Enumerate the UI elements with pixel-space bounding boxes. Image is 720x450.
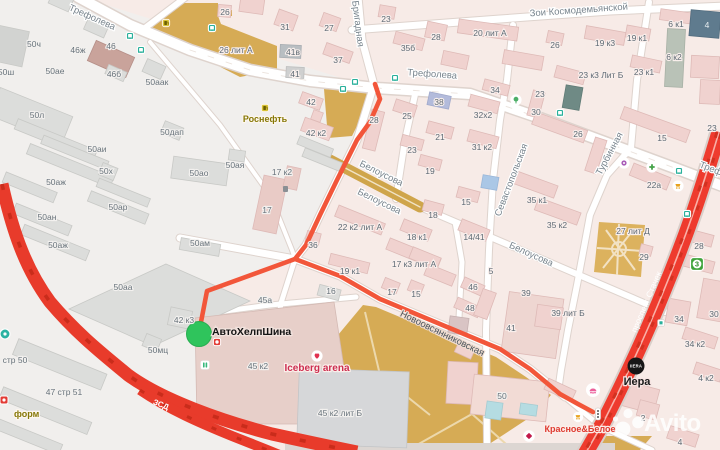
svg-text:25: 25 <box>402 111 412 121</box>
svg-text:Роснефть: Роснефть <box>243 114 288 124</box>
svg-text:4: 4 <box>705 20 710 30</box>
svg-text:50ар: 50ар <box>109 202 128 212</box>
svg-text:стр 50: стр 50 <box>3 355 28 365</box>
svg-text:19 к1: 19 к1 <box>340 266 361 276</box>
svg-text:29: 29 <box>639 252 649 262</box>
svg-text:23: 23 <box>535 89 545 99</box>
svg-text:41: 41 <box>506 323 516 333</box>
svg-text:26: 26 <box>220 7 230 17</box>
svg-text:36: 36 <box>308 240 318 250</box>
svg-text:23: 23 <box>381 14 391 24</box>
svg-text:34 к2: 34 к2 <box>685 339 706 349</box>
svg-text:19 к1: 19 к1 <box>627 33 648 43</box>
svg-text:41: 41 <box>290 69 300 79</box>
svg-text:46: 46 <box>468 282 478 292</box>
svg-text:42 к3: 42 к3 <box>174 315 195 325</box>
svg-text:28: 28 <box>694 241 704 251</box>
svg-text:18 к1: 18 к1 <box>407 232 428 242</box>
svg-text:23: 23 <box>707 123 717 133</box>
svg-text:17: 17 <box>262 205 272 215</box>
svg-text:АвтоХелпШина: АвтоХелпШина <box>212 326 291 338</box>
svg-text:46: 46 <box>106 41 116 51</box>
svg-text:50х: 50х <box>99 166 113 176</box>
svg-text:23: 23 <box>407 145 417 155</box>
svg-text:50ао: 50ао <box>190 168 209 178</box>
svg-text:50ш: 50ш <box>0 67 14 77</box>
svg-text:4 к2: 4 к2 <box>698 373 714 383</box>
svg-text:50аа: 50аа <box>114 282 133 292</box>
svg-text:Иера: Иера <box>624 376 652 388</box>
svg-text:30: 30 <box>709 309 719 319</box>
svg-text:37: 37 <box>333 55 343 65</box>
svg-text:27: 27 <box>324 23 334 33</box>
svg-text:50ч: 50ч <box>27 39 41 49</box>
svg-text:50аж: 50аж <box>48 240 68 250</box>
svg-text:46ж: 46ж <box>70 45 85 55</box>
svg-text:50л: 50л <box>30 110 44 120</box>
svg-text:26 лит А: 26 лит А <box>219 45 253 55</box>
svg-text:50мц: 50мц <box>148 345 168 355</box>
svg-text:14/41: 14/41 <box>463 232 485 242</box>
svg-text:39 лит Б: 39 лит Б <box>551 308 585 318</box>
svg-text:23 к3 Лит Б: 23 к3 Лит Б <box>579 70 624 80</box>
svg-text:27 лит Д: 27 лит Д <box>616 226 650 236</box>
svg-text:46б: 46б <box>107 69 121 79</box>
svg-text:17: 17 <box>387 287 397 297</box>
svg-text:19 к3: 19 к3 <box>595 38 616 48</box>
svg-text:42: 42 <box>306 97 316 107</box>
svg-text:17 к2: 17 к2 <box>272 167 293 177</box>
svg-text:48: 48 <box>465 303 475 313</box>
svg-text:42 к2: 42 к2 <box>306 128 327 138</box>
svg-text:16: 16 <box>326 286 336 296</box>
svg-text:22 к2 лит А: 22 к2 лит А <box>338 222 383 232</box>
svg-text:20 лит А: 20 лит А <box>473 28 507 38</box>
svg-text:50дап: 50дап <box>160 127 184 137</box>
svg-text:28: 28 <box>369 115 379 125</box>
svg-text:форм: форм <box>14 409 40 419</box>
svg-text:5: 5 <box>489 266 494 276</box>
svg-text:35б: 35б <box>401 43 415 53</box>
svg-text:22а: 22а <box>647 180 661 190</box>
svg-text:34: 34 <box>490 85 500 95</box>
svg-text:21: 21 <box>435 132 445 142</box>
svg-text:50: 50 <box>497 391 507 401</box>
svg-text:50ая: 50ая <box>226 160 245 170</box>
svg-text:50ан: 50ан <box>38 212 57 222</box>
svg-text:23 к1: 23 к1 <box>634 67 655 77</box>
svg-text:35 к1: 35 к1 <box>527 195 548 205</box>
svg-text:4: 4 <box>678 437 683 447</box>
svg-text:50ае: 50ае <box>46 66 65 76</box>
svg-text:30: 30 <box>531 107 541 117</box>
svg-text:26: 26 <box>573 129 583 139</box>
svg-text:50аи: 50аи <box>88 144 107 154</box>
svg-text:15: 15 <box>411 289 421 299</box>
svg-text:Красное&Белое: Красное&Белое <box>544 424 615 434</box>
svg-text:26: 26 <box>550 40 560 50</box>
svg-text:6 к1: 6 к1 <box>668 19 684 29</box>
svg-text:Iceberg arena: Iceberg arena <box>284 363 349 374</box>
svg-text:47 стр 51: 47 стр 51 <box>46 387 83 397</box>
svg-text:IIERA: IIERA <box>630 364 642 369</box>
svg-text:32х2: 32х2 <box>474 110 493 120</box>
svg-text:Avito: Avito <box>644 410 701 437</box>
svg-text:31 к2: 31 к2 <box>472 142 493 152</box>
svg-text:19: 19 <box>425 166 435 176</box>
svg-text:17 к3 лит А: 17 к3 лит А <box>392 259 437 269</box>
svg-text:3: 3 <box>695 260 699 269</box>
svg-text:38: 38 <box>434 97 444 107</box>
svg-text:41в: 41в <box>286 47 300 57</box>
svg-text:28: 28 <box>431 32 441 42</box>
svg-text:31: 31 <box>280 22 290 32</box>
svg-text:39: 39 <box>521 288 531 298</box>
svg-text:15: 15 <box>461 197 471 207</box>
svg-text:15: 15 <box>657 133 667 143</box>
svg-text:50аж: 50аж <box>46 177 66 187</box>
svg-text:6 к2: 6 к2 <box>666 52 682 62</box>
svg-text:45 к2 лит Б: 45 к2 лит Б <box>318 408 363 418</box>
svg-text:50аак: 50аак <box>146 77 169 87</box>
svg-text:45 к2: 45 к2 <box>248 361 269 371</box>
svg-text:35 к2: 35 к2 <box>547 220 568 230</box>
svg-text:34: 34 <box>674 314 684 324</box>
svg-text:45а: 45а <box>258 295 272 305</box>
svg-text:50ам: 50ам <box>190 238 210 248</box>
svg-text:18: 18 <box>428 210 438 220</box>
